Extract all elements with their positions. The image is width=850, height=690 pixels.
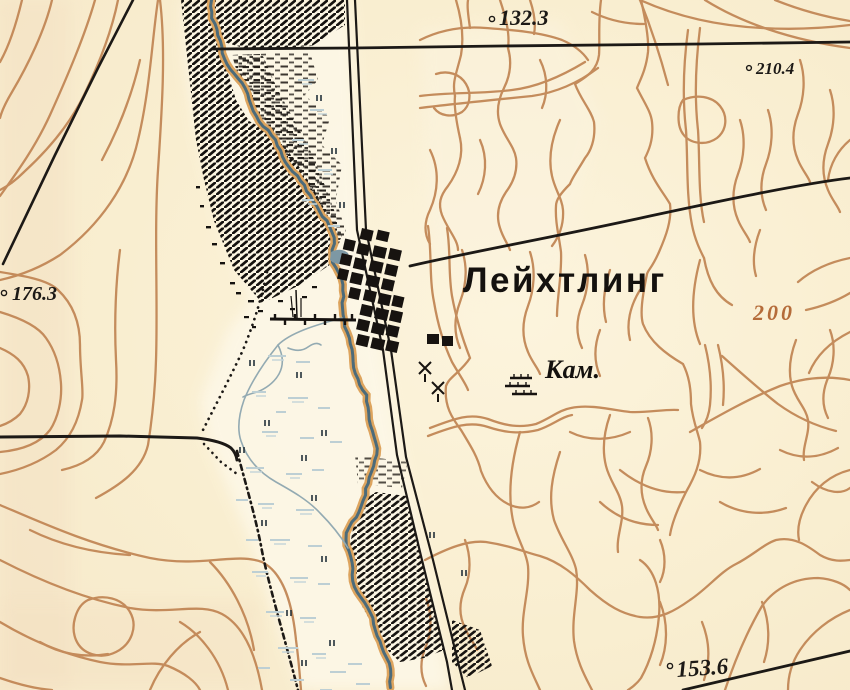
svg-text:176.3: 176.3 bbox=[12, 283, 57, 305]
svg-text:200: 200 bbox=[752, 300, 795, 325]
svg-text:153.6: 153.6 bbox=[676, 653, 730, 682]
svg-text:210.4: 210.4 bbox=[755, 59, 794, 78]
svg-text:Лейхтлинг: Лейхтлинг bbox=[463, 261, 667, 300]
svg-text:132.3: 132.3 bbox=[499, 5, 549, 30]
svg-text:Кам.: Кам. bbox=[544, 355, 600, 384]
